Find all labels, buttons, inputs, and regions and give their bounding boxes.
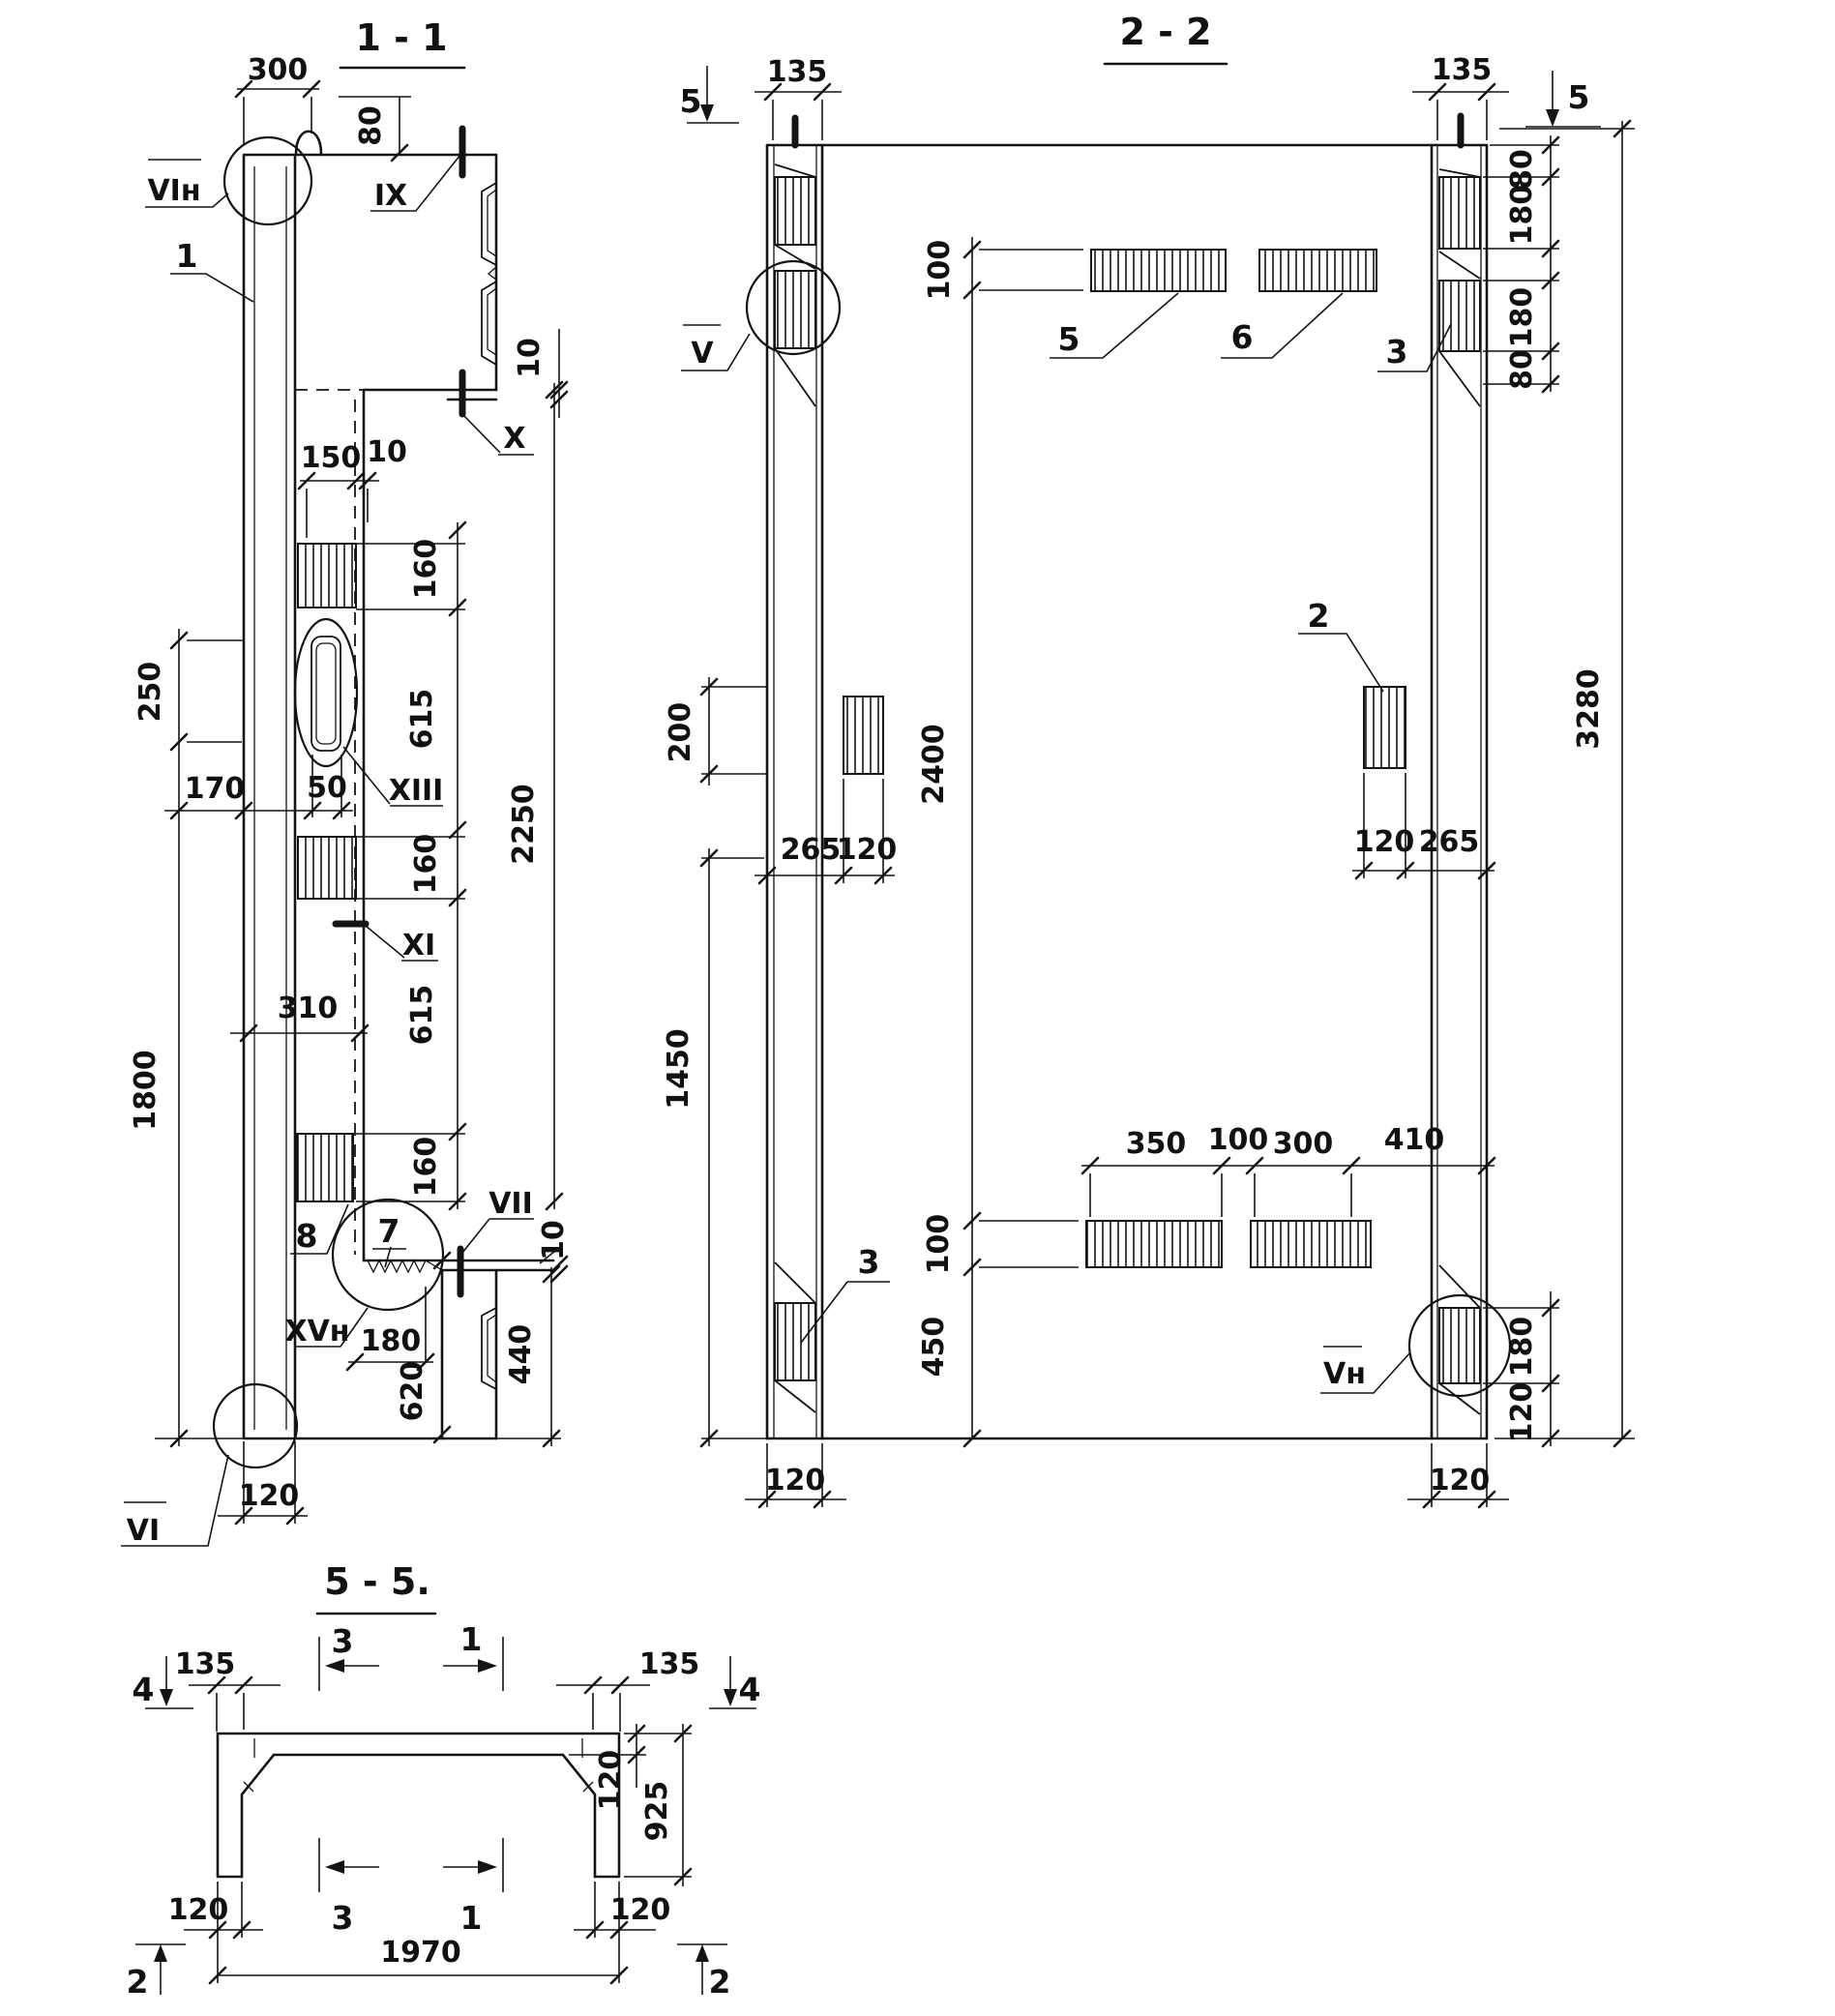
dim-120-botr: 120 bbox=[1505, 1382, 1539, 1443]
dim-350: 350 bbox=[1126, 1127, 1187, 1161]
dim-450: 450 bbox=[917, 1317, 951, 1378]
drawing-canvas: 1 - 1 300 80 10 150 10 160 615 160 615 1… bbox=[0, 0, 1835, 2016]
mark-vii: VII bbox=[488, 1187, 533, 1221]
dim-310: 310 bbox=[278, 992, 339, 1025]
dim-135-right: 135 bbox=[639, 1647, 700, 1681]
arrow-2-left: 2 bbox=[127, 1963, 149, 2001]
arrow-3-top: 3 bbox=[332, 1622, 354, 1660]
dim-1450: 1450 bbox=[662, 1028, 696, 1110]
rib-anchor bbox=[1439, 1308, 1480, 1383]
dim-160-3: 160 bbox=[409, 1137, 443, 1198]
arrow-5-right: 5 bbox=[1568, 78, 1590, 116]
rib-anchor bbox=[775, 271, 815, 348]
s11-texts: 1 - 1 300 80 10 150 10 160 615 160 615 1… bbox=[127, 16, 571, 1548]
mark-vn: Vн bbox=[1323, 1357, 1366, 1391]
anchor-block bbox=[298, 544, 356, 608]
dim-120-under-left: 120 bbox=[765, 1464, 826, 1497]
dim-3280: 3280 bbox=[1572, 668, 1606, 750]
s55-structure bbox=[218, 1734, 619, 1877]
arrow-1-bot: 1 bbox=[460, 1899, 483, 1937]
dim-2250: 2250 bbox=[507, 784, 541, 865]
anchor-bar-6 bbox=[1259, 250, 1376, 291]
dim-100-top: 100 bbox=[923, 240, 957, 301]
dim-180: 180 bbox=[361, 1324, 422, 1358]
dim-300: 300 bbox=[248, 53, 309, 87]
callout-3-bot: 3 bbox=[858, 1243, 880, 1281]
dim-265-left: 265 bbox=[781, 833, 842, 867]
dim-615-2: 615 bbox=[405, 985, 439, 1046]
s11-title: 1 - 1 bbox=[355, 16, 447, 59]
dim-100-mid: 100 bbox=[1208, 1123, 1269, 1157]
dim-410: 410 bbox=[1384, 1123, 1445, 1157]
dim-80: 80 bbox=[354, 105, 388, 146]
mark-ix: IX bbox=[374, 179, 407, 213]
dim-120-under-right: 120 bbox=[1430, 1464, 1491, 1497]
arrow-3-bot: 3 bbox=[332, 1899, 354, 1937]
anchor-block bbox=[298, 837, 356, 899]
dim-200: 200 bbox=[664, 702, 697, 763]
rib-anchor bbox=[1439, 177, 1480, 249]
detail-circle-vi bbox=[214, 1384, 297, 1468]
dim-250: 250 bbox=[133, 662, 167, 723]
arrow-5-left: 5 bbox=[680, 82, 702, 120]
anchor-block bbox=[844, 697, 883, 774]
dim-925: 925 bbox=[640, 1781, 674, 1842]
dim-160-2: 160 bbox=[409, 834, 443, 895]
dim-300: 300 bbox=[1273, 1127, 1334, 1161]
lifting-pins bbox=[795, 116, 1461, 145]
section-1-1: 1 - 1 300 80 10 150 10 160 615 160 615 1… bbox=[121, 16, 571, 1548]
section-2-2: 2 - 2 135 135 5 5 80 180 180 80 3280 100… bbox=[662, 11, 1635, 1507]
dim-135-left: 135 bbox=[767, 55, 828, 89]
anchor-bar-5 bbox=[1091, 250, 1226, 291]
mark-xi: XI bbox=[402, 929, 435, 963]
s55-title: 5 - 5. bbox=[324, 1560, 430, 1603]
rib-anchor bbox=[1439, 281, 1480, 351]
callout-2: 2 bbox=[1308, 597, 1330, 635]
callout-6: 6 bbox=[1231, 318, 1254, 356]
s55-texts: 5 - 5. 4 4 135 135 3 1 120 925 3 1 120 1… bbox=[127, 1560, 761, 2001]
s22-title: 2 - 2 bbox=[1119, 11, 1211, 53]
mark-xiii: XIII bbox=[389, 774, 444, 808]
section-5-5: 5 - 5. 4 4 135 135 3 1 120 925 3 1 120 1… bbox=[127, 1560, 761, 2001]
dim-10-bot: 10 bbox=[537, 1220, 571, 1260]
dim-120-botr: 120 bbox=[610, 1893, 671, 1927]
dim-180-top: 180 bbox=[1505, 185, 1539, 246]
s11-structure bbox=[214, 129, 553, 1468]
dim-120-right: 120 bbox=[1354, 825, 1415, 859]
slot-inner bbox=[316, 643, 336, 744]
callout-8: 8 bbox=[296, 1217, 318, 1255]
dim-180-top2: 180 bbox=[1505, 287, 1539, 348]
dim-615-1: 615 bbox=[405, 689, 439, 750]
callout-1: 1 bbox=[176, 237, 198, 275]
dim-10-top: 10 bbox=[513, 338, 547, 378]
arrow-4-right: 4 bbox=[739, 1671, 761, 1708]
dim-440: 440 bbox=[504, 1324, 538, 1385]
dim-150: 150 bbox=[301, 441, 362, 475]
arrow-2-right: 2 bbox=[709, 1963, 731, 2001]
dim-120: 120 bbox=[239, 1479, 300, 1513]
anchor-bar bbox=[1086, 1221, 1222, 1267]
dim-80-top: 80 bbox=[1505, 149, 1539, 190]
dim-10-mid: 10 bbox=[367, 435, 407, 469]
detail-circle-vin bbox=[224, 137, 311, 224]
s22-structure bbox=[747, 116, 1510, 1438]
dim-180-bot: 180 bbox=[1505, 1317, 1539, 1378]
serration-detail bbox=[368, 1260, 442, 1272]
dim-50: 50 bbox=[307, 771, 347, 805]
dim-265-right: 265 bbox=[1419, 825, 1480, 859]
dim-2400: 2400 bbox=[917, 724, 951, 805]
mark-x: X bbox=[503, 422, 525, 456]
section-cut-ticks bbox=[336, 129, 462, 1294]
dim-170: 170 bbox=[185, 772, 246, 806]
callout-3-top: 3 bbox=[1386, 333, 1408, 371]
callout-5: 5 bbox=[1058, 320, 1080, 358]
drawing-sheet: 1 - 1 300 80 10 150 10 160 615 160 615 1… bbox=[0, 0, 1835, 2016]
mark-xvn: XVн bbox=[284, 1315, 349, 1349]
dim-120-left: 120 bbox=[837, 833, 898, 867]
dim-160-1: 160 bbox=[409, 539, 443, 600]
dim-100-low: 100 bbox=[922, 1214, 956, 1275]
anchor-bar bbox=[1251, 1221, 1371, 1267]
dim-620: 620 bbox=[396, 1361, 429, 1422]
mark-v: V bbox=[691, 337, 714, 371]
dim-120-botl: 120 bbox=[168, 1893, 229, 1927]
dim-1970: 1970 bbox=[380, 1936, 461, 1970]
anchor-block bbox=[297, 1134, 353, 1201]
dim-80-top2: 80 bbox=[1505, 349, 1539, 390]
anchor-block-2 bbox=[1364, 687, 1406, 768]
rib-anchor bbox=[775, 1303, 815, 1380]
dim-135-left: 135 bbox=[175, 1647, 236, 1681]
arrow-1-top: 1 bbox=[460, 1620, 483, 1658]
dim-135-right: 135 bbox=[1432, 53, 1493, 87]
rib-anchor bbox=[775, 177, 815, 245]
dim-120-top: 120 bbox=[594, 1750, 628, 1811]
mark-vi: VI bbox=[127, 1514, 160, 1548]
arrow-4-left: 4 bbox=[133, 1671, 155, 1708]
callout-7: 7 bbox=[378, 1212, 400, 1250]
mark-vin: VIн bbox=[147, 174, 200, 208]
dim-1800: 1800 bbox=[129, 1050, 163, 1131]
